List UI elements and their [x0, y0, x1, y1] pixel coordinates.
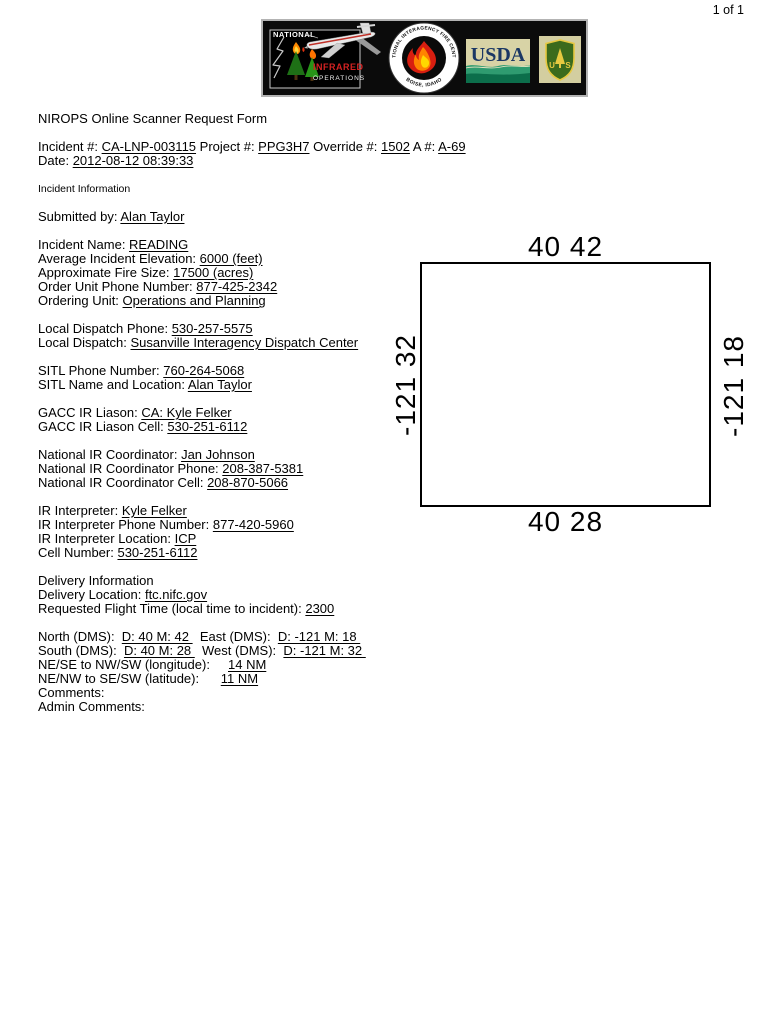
shield-letter-u: U	[549, 61, 555, 70]
field-label: Incident Name:	[38, 237, 129, 252]
blank-line	[38, 196, 458, 210]
field-label: Date:	[38, 153, 73, 168]
field-value: D: -121 M: 32	[283, 643, 365, 658]
field-label: Local Dispatch Phone:	[38, 321, 172, 336]
form-line: National IR Coordinator: Jan Johnson	[38, 448, 458, 462]
form-line: Date: 2012-08-12 08:39:33	[38, 154, 458, 168]
field-label: NE/NW to SE/SW (latitude):	[38, 671, 221, 686]
field-label: NE/SE to NW/SW (longitude):	[38, 657, 228, 672]
blank-line	[38, 224, 458, 238]
field-label: Ordering Unit:	[38, 293, 123, 308]
field-label: IR Interpreter:	[38, 503, 122, 518]
usda-logo: USDA	[466, 39, 530, 83]
form-line: Delivery Location: ftc.nifc.gov	[38, 588, 458, 602]
forest-service-logo: U S	[539, 36, 581, 83]
field-label: Average Incident Elevation:	[38, 251, 200, 266]
field-label: Cell Number:	[38, 545, 117, 560]
field-value: READING	[129, 237, 188, 252]
blank-line	[38, 168, 458, 182]
field-label: Project #:	[196, 139, 258, 154]
west-longitude-label: -121 32	[391, 334, 421, 436]
form-line: North (DMS): D: 40 M: 42 East (DMS): D: …	[38, 630, 458, 644]
field-label: South (DMS):	[38, 643, 124, 658]
field-value: ICP	[175, 531, 197, 546]
field-value: Alan Taylor	[120, 209, 184, 224]
field-label: North (DMS):	[38, 629, 122, 644]
field-label: Override #:	[309, 139, 381, 154]
field-label: National IR Coordinator Cell:	[38, 475, 207, 490]
south-latitude-label: 40 28	[420, 507, 711, 537]
field-value: 877-425-2342	[196, 279, 277, 294]
nirops-national-label: NATIONAL	[273, 30, 315, 39]
field-value: PPG3H7	[258, 139, 309, 154]
field-value: 14 NM	[228, 657, 266, 672]
field-value: 208-870-5066	[207, 475, 288, 490]
form-line: Admin Comments:	[38, 700, 458, 714]
blank-line	[38, 308, 458, 322]
field-label: Requested Flight Time (local time to inc…	[38, 601, 305, 616]
field-value: 877-420-5960	[213, 517, 294, 532]
field-label: Comments:	[38, 685, 104, 700]
field-label: SITL Name and Location:	[38, 377, 188, 392]
field-value: 530-251-6112	[117, 545, 197, 560]
form-line: Incident #: CA-LNP-003115 Project #: PPG…	[38, 140, 458, 154]
field-value: ftc.nifc.gov	[145, 587, 207, 602]
field-value: CA-LNP-003115	[102, 139, 196, 154]
nirops-operations-label: OPERATIONS	[313, 75, 365, 82]
form-line: National IR Coordinator Cell: 208-870-50…	[38, 476, 458, 490]
field-label: Submitted by:	[38, 209, 120, 224]
field-value: Susanville Interagency Dispatch Center	[131, 335, 359, 350]
form-line: Incident Information	[38, 182, 458, 196]
usda-wordmark: USDA	[471, 44, 526, 66]
field-label: West (DMS):	[195, 643, 284, 658]
form-line: Incident Name: READING	[38, 238, 458, 252]
field-value: 17500 (acres)	[173, 265, 253, 280]
field-label: NIROPS Online Scanner Request Form	[38, 111, 267, 126]
form-line: Approximate Fire Size: 17500 (acres)	[38, 266, 458, 280]
field-label: Local Dispatch:	[38, 335, 131, 350]
field-value: 760-264-5068	[163, 363, 244, 378]
east-longitude-label: -121 18	[719, 335, 749, 437]
blank-line	[38, 126, 458, 140]
field-value: CA: Kyle Felker	[141, 405, 231, 420]
form-line: South (DMS): D: 40 M: 28 West (DMS): D: …	[38, 644, 458, 658]
field-value: 2012-08-12 08:39:33	[73, 153, 194, 168]
document-page: 1 of 1 NATIONAL	[0, 0, 770, 1024]
scan-area-rectangle	[420, 262, 711, 507]
field-value: Alan Taylor	[188, 377, 252, 392]
field-value: D: -121 M: 18	[278, 629, 360, 644]
field-value: A-69	[438, 139, 465, 154]
field-label: Admin Comments:	[38, 699, 145, 714]
field-value: D: 40 M: 28	[124, 643, 195, 658]
field-value: 530-257-5575	[172, 321, 253, 336]
field-label: Incident Information	[38, 183, 130, 195]
field-label: IR Interpreter Phone Number:	[38, 517, 213, 532]
field-label: SITL Phone Number:	[38, 363, 163, 378]
field-label: GACC IR Liason:	[38, 405, 141, 420]
field-label: A #:	[410, 139, 438, 154]
field-label: National IR Coordinator Phone:	[38, 461, 222, 476]
header-banner: NATIONAL	[261, 19, 588, 97]
field-value: 530-251-6112	[167, 419, 247, 434]
form-line: Ordering Unit: Operations and Planning	[38, 294, 458, 308]
form-line: Comments:	[38, 686, 458, 700]
form-line: IR Interpreter Location: ICP	[38, 532, 458, 546]
form-line: Average Incident Elevation: 6000 (feet)	[38, 252, 458, 266]
form-line: NE/SE to NW/SW (longitude): 14 NM	[38, 658, 458, 672]
form-line: Order Unit Phone Number: 877-425-2342	[38, 280, 458, 294]
form-line: NE/NW to SE/SW (latitude): 11 NM	[38, 672, 458, 686]
field-value: 208-387-5381	[222, 461, 303, 476]
field-label: Delivery Location:	[38, 587, 145, 602]
form-line: National IR Coordinator Phone: 208-387-5…	[38, 462, 458, 476]
field-value: 2300	[305, 601, 334, 616]
form-line: Submitted by: Alan Taylor	[38, 210, 458, 224]
blank-line	[38, 560, 458, 574]
field-value: D: 40 M: 42	[122, 629, 193, 644]
blank-line	[38, 434, 458, 448]
form-line: Requested Flight Time (local time to inc…	[38, 602, 458, 616]
field-label: East (DMS):	[193, 629, 278, 644]
field-value: 11 NM	[221, 671, 258, 686]
field-label: Approximate Fire Size:	[38, 265, 173, 280]
field-label: GACC IR Liason Cell:	[38, 419, 167, 434]
field-value: 6000 (feet)	[200, 251, 263, 266]
north-latitude-label: 40 42	[420, 232, 711, 262]
field-label: Incident #:	[38, 139, 102, 154]
field-value: Jan Johnson	[181, 447, 255, 462]
field-label: Order Unit Phone Number:	[38, 279, 196, 294]
blank-line	[38, 490, 458, 504]
field-value: 1502	[381, 139, 410, 154]
field-label: National IR Coordinator:	[38, 447, 181, 462]
page-indicator: 1 of 1	[713, 3, 744, 17]
header-logos: NATIONAL	[263, 21, 586, 95]
field-value: Operations and Planning	[123, 293, 266, 308]
field-value: Kyle Felker	[122, 503, 187, 518]
form-line: IR Interpreter: Kyle Felker	[38, 504, 458, 518]
form-line: Delivery Information	[38, 574, 458, 588]
usda-field-icon	[466, 65, 530, 83]
nirops-infrared-label: INFRARED	[313, 62, 364, 72]
shield-letter-s: S	[565, 61, 571, 70]
field-label: Delivery Information	[38, 573, 154, 588]
blank-line	[38, 616, 458, 630]
field-label: IR Interpreter Location:	[38, 531, 175, 546]
form-line: Cell Number: 530-251-6112	[38, 546, 458, 560]
form-line: IR Interpreter Phone Number: 877-420-596…	[38, 518, 458, 532]
form-line: NIROPS Online Scanner Request Form	[38, 112, 458, 126]
